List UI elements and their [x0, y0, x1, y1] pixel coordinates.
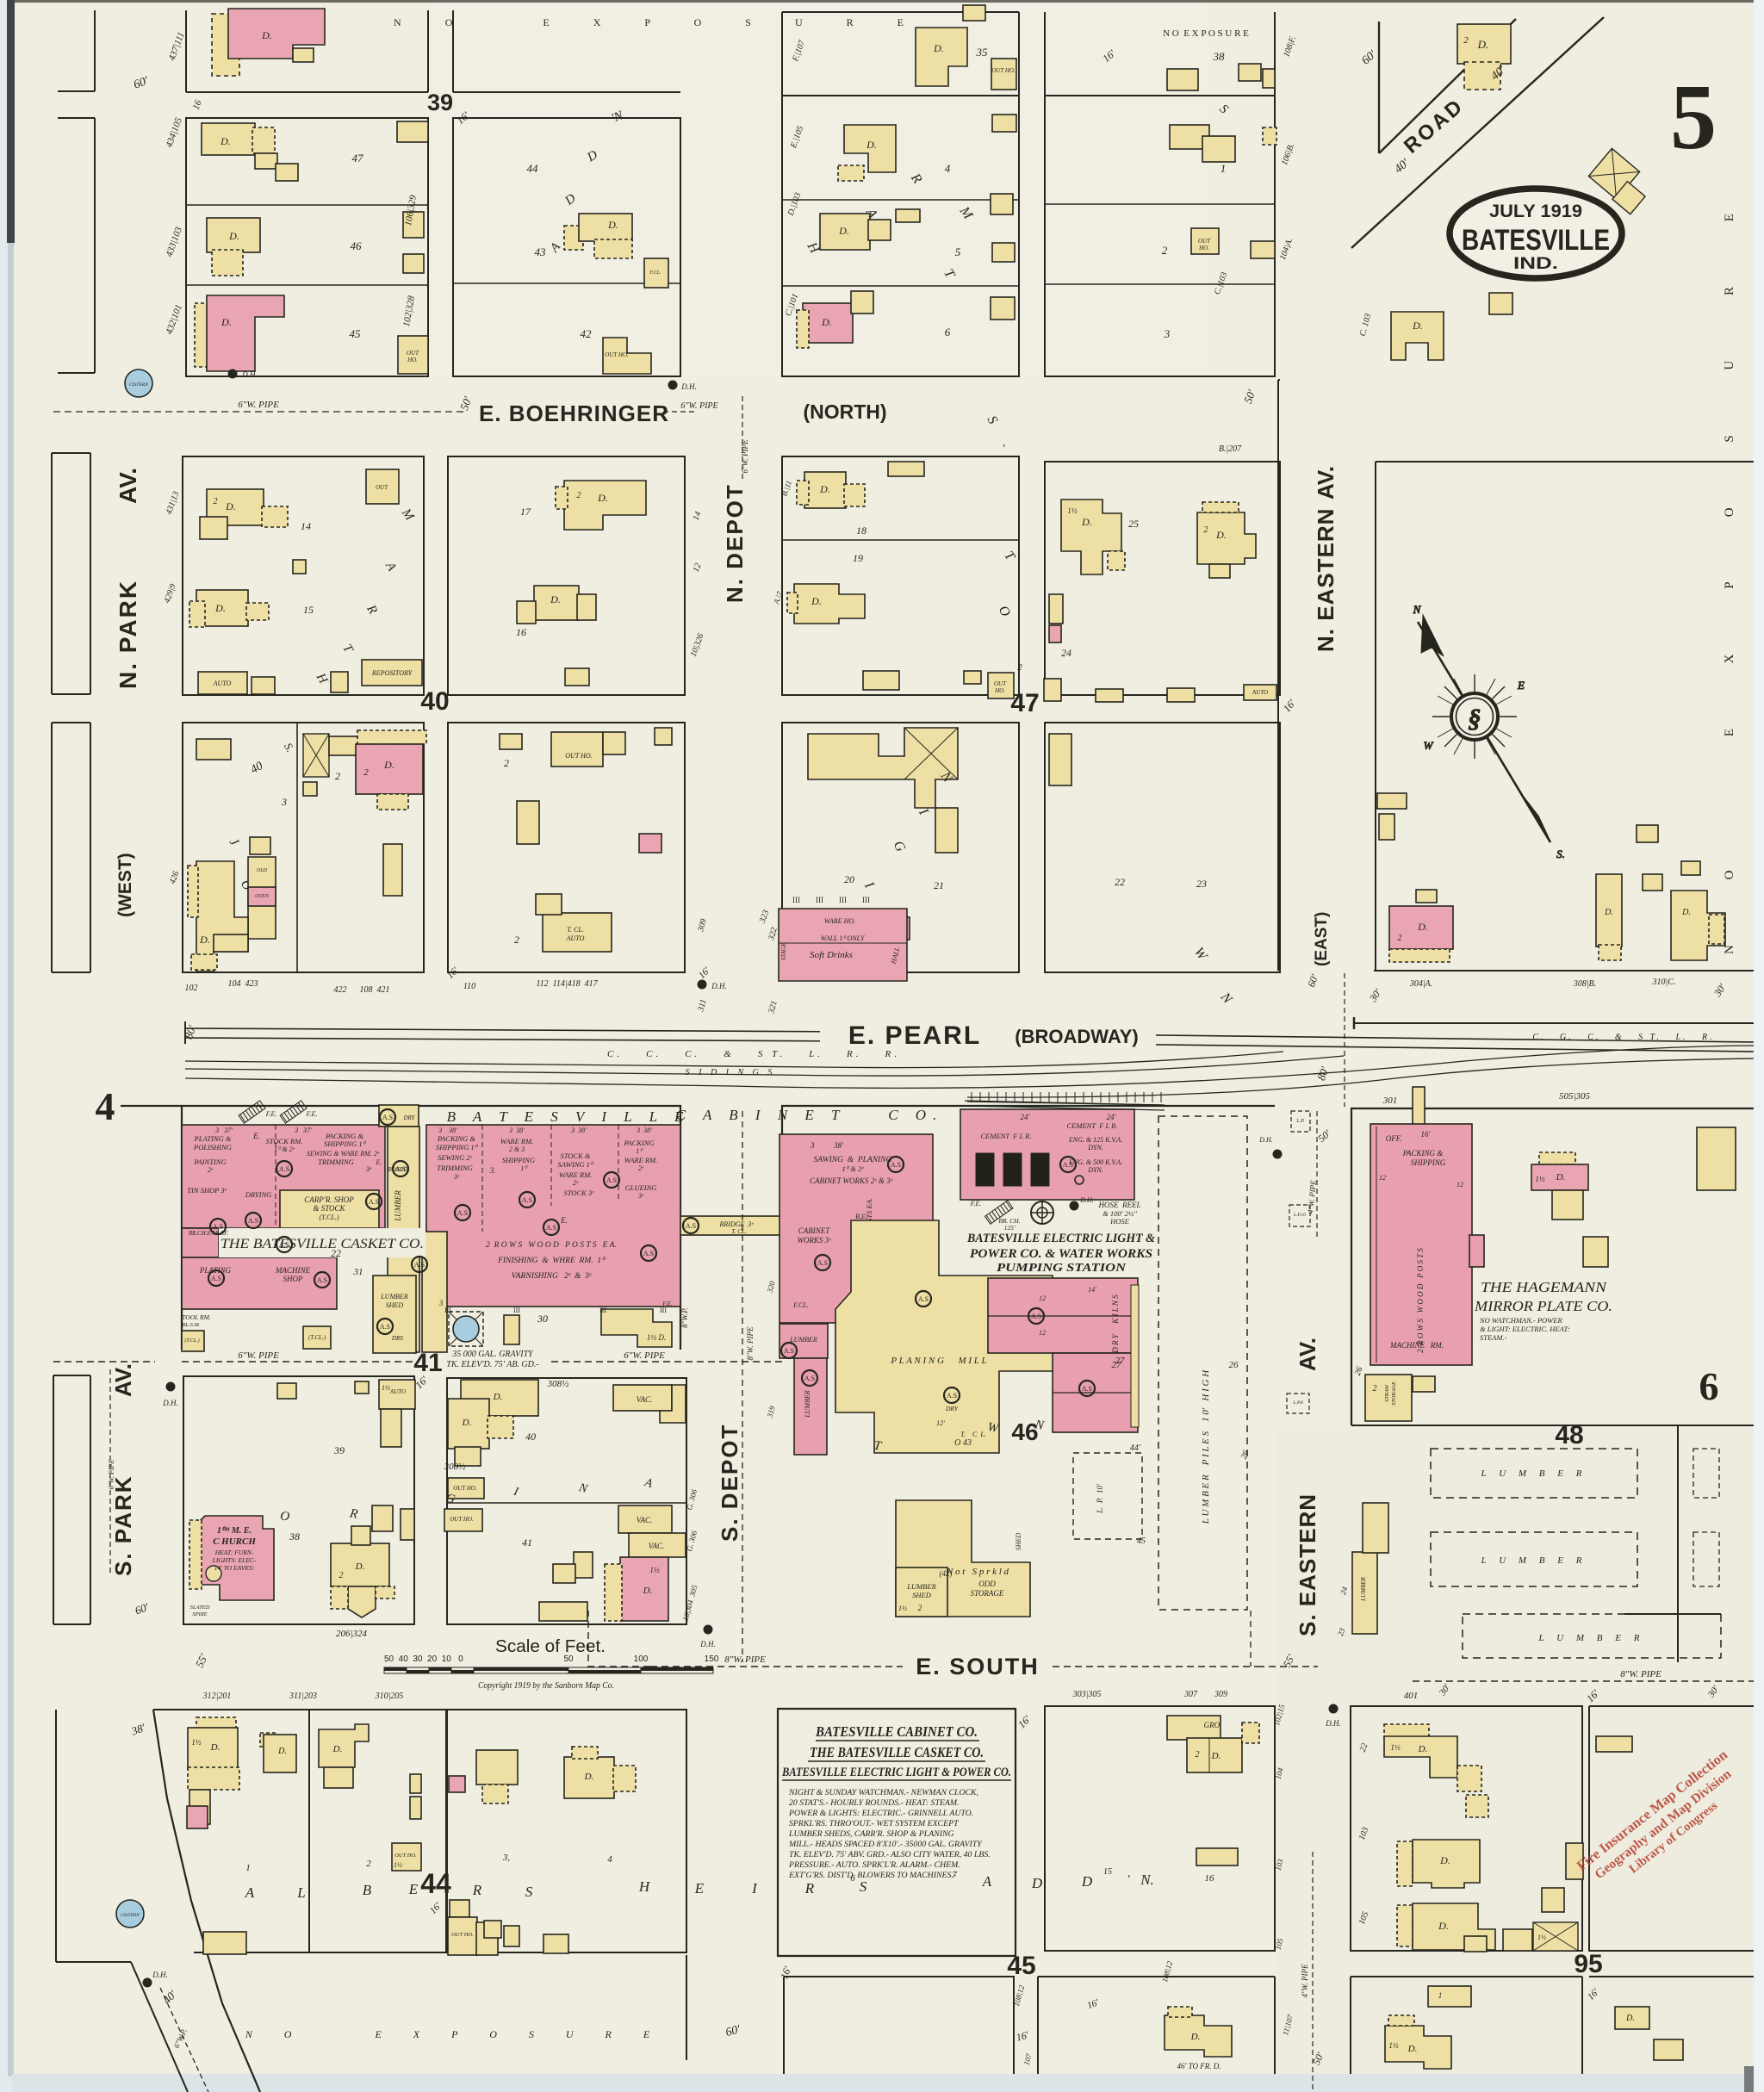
- svg-text:38: 38: [289, 1530, 300, 1543]
- svg-text:3.: 3.: [489, 1166, 496, 1175]
- svg-text:12': 12': [936, 1419, 945, 1427]
- svg-text:BATESVILLE: BATESVILLE: [1462, 224, 1610, 257]
- svg-text:LUMBER: LUMBER: [789, 1336, 817, 1344]
- svg-text:(T.CL.): (T.CL.): [308, 1334, 326, 1341]
- svg-text:6: 6: [850, 1873, 855, 1884]
- svg-text:14' TO EAVES:: 14' TO EAVES:: [214, 1564, 255, 1572]
- svg-text:ODD: ODD: [978, 1580, 996, 1588]
- svg-text:SHIPPING 1⁰: SHIPPING 1⁰: [436, 1143, 479, 1152]
- svg-text:3: 3: [1164, 327, 1171, 340]
- svg-text:1½: 1½: [382, 1384, 390, 1392]
- svg-text:OUT HO.: OUT HO.: [991, 67, 1016, 74]
- svg-text:E: E: [694, 1880, 705, 1896]
- svg-text:NO WATCHMAN.- POWER: NO WATCHMAN.- POWER: [1479, 1316, 1562, 1325]
- svg-text:D.: D.: [597, 492, 608, 504]
- svg-text:WARE RM.: WARE RM.: [500, 1137, 534, 1145]
- svg-text:2: 2: [1463, 35, 1469, 46]
- svg-text:LUMBER: LUMBER: [394, 1190, 402, 1222]
- svg-text:T. CL.: T. CL.: [731, 1228, 746, 1235]
- svg-text:L: L: [296, 1884, 305, 1901]
- svg-text:POWER CO. & WATER WORKS: POWER CO. & WATER WORKS: [970, 1247, 1152, 1261]
- svg-text:3 37': 3 37': [214, 1127, 233, 1134]
- svg-text:A.S: A.S: [1063, 1161, 1073, 1169]
- svg-text:SHIPPING: SHIPPING: [502, 1156, 535, 1164]
- svg-text:1: 1: [1221, 162, 1227, 175]
- svg-text:C A B I N E T C O.: C A B I N E T C O.: [676, 1107, 944, 1123]
- svg-text:R: R: [472, 1882, 482, 1898]
- svg-text:1½: 1½: [394, 1861, 402, 1869]
- svg-text:POWER & LIGHTS: ELECTRIC.- GRI: POWER & LIGHTS: ELECTRIC.- GRINNELL AUTO…: [788, 1809, 973, 1818]
- svg-text:47: 47: [352, 152, 364, 165]
- svg-text:AUTO: AUTO: [566, 934, 585, 942]
- svg-text:LUMBER: LUMBER: [1360, 1576, 1367, 1601]
- svg-text:2: 2: [363, 767, 369, 778]
- svg-text:50: 50: [563, 1654, 574, 1664]
- svg-text:4: 4: [96, 1084, 115, 1128]
- svg-text:CABINET: CABINET: [798, 1226, 830, 1235]
- svg-text:THE HAGEMANN: THE HAGEMANN: [1481, 1279, 1608, 1295]
- svg-text:310|205: 310|205: [375, 1692, 404, 1701]
- svg-text:SHIPPING: SHIPPING: [1411, 1158, 1446, 1167]
- svg-text:AV.: AV.: [110, 1363, 136, 1397]
- svg-text:A.S: A.S: [918, 1295, 929, 1303]
- svg-text:N. PARK: N. PARK: [115, 580, 141, 689]
- svg-text:E.: E.: [560, 1216, 568, 1225]
- svg-text:102: 102: [185, 984, 198, 993]
- svg-text:III: III: [599, 1307, 606, 1314]
- svg-text:1: 1: [245, 1863, 251, 1873]
- svg-text:(NORTH): (NORTH): [803, 400, 886, 423]
- svg-text:W: W: [1424, 739, 1434, 752]
- svg-text:CEMENT F L R.: CEMENT F L R.: [981, 1132, 1032, 1140]
- svg-text:6: 6: [945, 326, 951, 338]
- svg-text:MILL.- HEADS SPACED 8'X10'.- 3: MILL.- HEADS SPACED 8'X10'.- 35000 GAL. …: [788, 1840, 983, 1849]
- svg-text:35 000 GAL. GRAVITY: 35 000 GAL. GRAVITY: [451, 1350, 534, 1359]
- svg-text:E.: E.: [376, 1158, 382, 1166]
- svg-text:45: 45: [1137, 1536, 1146, 1546]
- svg-text:PACKING: PACKING: [623, 1139, 654, 1147]
- svg-text:30: 30: [537, 1313, 548, 1325]
- svg-text:PLATING &: PLATING &: [194, 1134, 232, 1143]
- svg-text:D.H.: D.H.: [152, 1971, 168, 1979]
- svg-text:III III III: III III III III: [792, 896, 870, 904]
- svg-text:PACKING &: PACKING &: [1402, 1149, 1444, 1158]
- svg-text:4: 4: [945, 162, 951, 175]
- svg-text:22: 22: [331, 1247, 341, 1259]
- svg-text:3 37': 3 37': [294, 1127, 312, 1134]
- svg-text:III: III: [444, 1307, 451, 1314]
- svg-text:2: 2: [514, 934, 519, 946]
- svg-text:46: 46: [1011, 1418, 1038, 1445]
- svg-text:2: 2: [1398, 934, 1402, 943]
- svg-text:A.S: A.S: [248, 1217, 258, 1225]
- svg-text:100: 100: [634, 1654, 649, 1664]
- svg-text:40: 40: [420, 687, 449, 716]
- svg-text:307 309: 307 309: [1183, 1690, 1227, 1699]
- svg-text:D.: D.: [1412, 320, 1423, 332]
- svg-text:2ᵉ: 2ᵉ: [573, 1179, 579, 1187]
- svg-text:16: 16: [516, 626, 526, 638]
- svg-text:OLD: OLD: [257, 868, 268, 873]
- svg-text:39: 39: [333, 1444, 345, 1456]
- svg-text:47: 47: [1010, 689, 1039, 717]
- svg-text:A.S: A.S: [804, 1375, 815, 1382]
- svg-text:15: 15: [303, 604, 314, 616]
- svg-text:STEAM.-: STEAM.-: [1480, 1333, 1507, 1342]
- svg-text:5: 5: [955, 245, 961, 258]
- svg-text:D.: D.: [493, 1392, 503, 1402]
- svg-text:2ᵉ: 2ᵉ: [208, 1166, 214, 1174]
- svg-text:1⁰ᴹ M. E.: 1⁰ᴹ M. E.: [217, 1526, 252, 1536]
- svg-text:D.: D.: [1418, 1744, 1428, 1754]
- svg-text:2: 2: [1196, 1750, 1200, 1760]
- svg-text:D.: D.: [584, 1772, 594, 1782]
- svg-text:N O E X P O S U R E: N O E X P O S U R E: [1723, 183, 1736, 954]
- svg-text:4: 4: [607, 1854, 612, 1865]
- svg-text:125': 125': [1004, 1224, 1016, 1232]
- svg-text:OUT: OUT: [376, 484, 388, 491]
- svg-text:P L A N I N G M I L L: P L A N I N G M I L L: [890, 1356, 986, 1366]
- svg-text:EXT'G'RS. DIST'D. BLOWERS TO M: EXT'G'RS. DIST'D. BLOWERS TO MACHINES.-: [788, 1871, 956, 1880]
- svg-text:SHED: SHED: [912, 1591, 932, 1599]
- svg-text:1½: 1½: [1388, 2041, 1399, 2050]
- svg-text:S: S: [525, 1884, 533, 1900]
- svg-text:3 38': 3 38': [438, 1127, 457, 1134]
- svg-text:A.S: A.S: [382, 1114, 393, 1121]
- svg-text:8"W.P.: 8"W.P.: [680, 1307, 689, 1328]
- svg-text:D.H.: D.H.: [241, 370, 258, 379]
- svg-text:45: 45: [350, 327, 362, 340]
- svg-text:A.S: A.S: [522, 1196, 532, 1204]
- svg-text:12: 12: [1457, 1181, 1463, 1189]
- svg-text:OUT HO.: OUT HO.: [451, 1932, 474, 1938]
- svg-text:ENG. & 125 K.V.A.: ENG. & 125 K.V.A.: [1068, 1136, 1122, 1144]
- svg-text:D.: D.: [1439, 1854, 1450, 1866]
- svg-text:1½: 1½: [898, 1605, 907, 1612]
- svg-text:SPRKL'RS. THRO'OUT.- WET SYSTE: SPRKL'RS. THRO'OUT.- WET SYSTEM EXCEPT: [789, 1819, 960, 1828]
- svg-text:STOCK &: STOCK &: [560, 1152, 590, 1160]
- svg-text:1⁰ & 2ᵉ: 1⁰ & 2ᵉ: [274, 1145, 295, 1153]
- svg-text:5: 5: [1670, 66, 1717, 169]
- svg-text:38: 38: [1213, 50, 1226, 63]
- svg-text:150: 150: [705, 1654, 719, 1664]
- svg-text:K I L N S: K I L N S: [1111, 1294, 1120, 1325]
- svg-text:(T.CL.): (T.CL.): [184, 1338, 199, 1344]
- svg-text:D.: D.: [199, 934, 210, 946]
- svg-text:41: 41: [413, 1349, 442, 1377]
- svg-text:THE BATESVILLE CASKET CO.: THE BATESVILLE CASKET CO.: [220, 1237, 424, 1251]
- svg-text:8"W. PIPE: 8"W. PIPE: [1620, 1669, 1662, 1679]
- svg-text:12: 12: [1379, 1174, 1386, 1182]
- svg-text:D.: D.: [383, 759, 394, 771]
- svg-text:3ᵉ: 3ᵉ: [365, 1165, 372, 1173]
- svg-text:S.: S.: [1556, 847, 1565, 860]
- svg-text:3 38': 3 38': [508, 1127, 525, 1134]
- svg-text:7: 7: [952, 1870, 957, 1880]
- svg-text:LIGHTS: ELEC-: LIGHTS: ELEC-: [212, 1556, 257, 1564]
- svg-text:(T.CL.): (T.CL.): [320, 1214, 339, 1221]
- svg-text:TRIMMING: TRIMMING: [437, 1164, 473, 1172]
- svg-text:44: 44: [420, 1868, 451, 1899]
- svg-text:D.: D.: [1407, 2044, 1418, 2054]
- svg-text:48: 48: [1555, 1421, 1583, 1450]
- svg-text:110: 110: [463, 982, 475, 991]
- svg-text:OUT: OUT: [994, 680, 1007, 687]
- svg-text:L U M B E R: L U M B E R: [1481, 1555, 1587, 1566]
- svg-text:HO.: HO.: [407, 357, 418, 363]
- svg-text:505|305: 505|305: [1559, 1091, 1591, 1102]
- svg-text:40: 40: [525, 1431, 536, 1443]
- svg-text:S I D I N G S: S I D I N G S: [686, 1068, 776, 1077]
- svg-text:B: B: [363, 1882, 372, 1898]
- svg-text:206|324: 206|324: [336, 1629, 368, 1639]
- svg-text:45: 45: [1007, 1952, 1035, 1980]
- svg-text:A.S: A.S: [395, 1165, 406, 1173]
- svg-text:D.: D.: [643, 1586, 653, 1596]
- svg-text:6"W. PIPE: 6"W. PIPE: [680, 401, 717, 411]
- svg-text:B.E.: B.E.: [855, 1213, 867, 1220]
- svg-text:D R Y: D R Y: [1111, 1333, 1120, 1353]
- svg-text:3 38': 3 38': [810, 1141, 844, 1150]
- svg-text:WARE RM.: WARE RM.: [559, 1170, 593, 1179]
- svg-text:F.E.: F.E.: [306, 1110, 318, 1118]
- svg-text:JULY 1919: JULY 1919: [1489, 202, 1582, 221]
- svg-text:D.: D.: [220, 135, 231, 147]
- svg-text:401: 401: [1404, 1691, 1419, 1701]
- svg-text:GRO.: GRO.: [1204, 1721, 1222, 1729]
- svg-text:3: 3: [281, 796, 287, 808]
- svg-text:III: III: [513, 1307, 520, 1314]
- svg-text:Copyright 1919 by the Sanborn: Copyright 1919 by the Sanborn Map Co.: [478, 1681, 614, 1691]
- svg-text:& STOCK: & STOCK: [313, 1204, 345, 1213]
- svg-text:N.: N.: [1140, 1872, 1154, 1888]
- svg-text:26: 26: [1229, 1360, 1239, 1370]
- svg-text:2: 2: [1017, 662, 1022, 673]
- svg-text:SAWING & PLANING: SAWING & PLANING: [814, 1156, 892, 1164]
- svg-text:D.: D.: [811, 595, 822, 607]
- svg-text:WARE RM.: WARE RM.: [624, 1156, 658, 1164]
- svg-text:308|B.: 308|B.: [1573, 979, 1596, 989]
- svg-text:1½: 1½: [1537, 1934, 1546, 1941]
- svg-text:D.H.: D.H.: [1258, 1136, 1273, 1144]
- svg-text:OUT: OUT: [407, 350, 419, 357]
- svg-text:D: D: [1031, 1875, 1043, 1891]
- svg-text:D.: D.: [261, 29, 272, 41]
- svg-text:311|203: 311|203: [289, 1692, 317, 1701]
- svg-text:D.: D.: [214, 602, 226, 614]
- svg-text:D.: D.: [1190, 2032, 1201, 2042]
- svg-text:L. P. 10': L. P. 10': [1096, 1483, 1104, 1514]
- svg-text:T. CL.: T. CL.: [567, 926, 584, 934]
- svg-text:1½ D.: 1½ D.: [647, 1333, 666, 1342]
- svg-text:308½: 308½: [547, 1379, 569, 1389]
- svg-text:D.: D.: [1556, 1172, 1566, 1183]
- svg-text:STAGE: STAGE: [780, 942, 787, 960]
- svg-text:VAC.: VAC.: [637, 1516, 653, 1524]
- svg-text:D.H.: D.H.: [699, 1640, 716, 1648]
- svg-text:SPIRE: SPIRE: [192, 1611, 207, 1617]
- svg-text:A.S: A.S: [947, 1392, 957, 1400]
- svg-text:STORAGE: STORAGE: [971, 1589, 1004, 1598]
- svg-text:A.S: A.S: [457, 1209, 468, 1217]
- svg-text:L U M B E R P I L E S 1: L U M B E R P I L E S 1 0' H I G H: [1201, 1369, 1211, 1524]
- svg-text:NIGHT & SUNDAY WATCHMAN.- NEWM: NIGHT & SUNDAY WATCHMAN.- NEWMAN CLOCK,: [788, 1788, 978, 1797]
- svg-text:A.S: A.S: [279, 1165, 289, 1173]
- svg-text:POLISHING: POLISHING: [193, 1143, 232, 1152]
- svg-text:41: 41: [522, 1536, 532, 1549]
- svg-text:1½: 1½: [1067, 506, 1078, 515]
- svg-text:18: 18: [856, 525, 866, 537]
- svg-text:6"W. PIPE: 6"W. PIPE: [238, 400, 279, 410]
- svg-text:D.: D.: [1625, 2014, 1635, 2023]
- svg-text:A.S: A.S: [211, 1275, 221, 1282]
- svg-text:2: 2: [214, 497, 218, 506]
- svg-text:E: E: [408, 1881, 419, 1897]
- svg-text:D.: D.: [228, 230, 239, 242]
- svg-text:D.: D.: [1681, 908, 1691, 917]
- svg-text:L.P.10: L.P.10: [1293, 1213, 1306, 1218]
- svg-text:N O E X P O S U R E: N O E X P O S U R E: [245, 2028, 664, 2040]
- svg-text:OUT HO.: OUT HO.: [565, 752, 592, 760]
- svg-text:BL.S.M.: BL.S.M.: [182, 1322, 201, 1328]
- svg-text:D.H.: D.H.: [680, 382, 697, 391]
- svg-text:N. DEPOT: N. DEPOT: [722, 483, 748, 603]
- svg-text:D.: D.: [1477, 38, 1489, 51]
- svg-text:3ᵉ: 3ᵉ: [637, 1192, 644, 1200]
- svg-text:OVEN: OVEN: [255, 894, 270, 899]
- svg-text:D.: D.: [210, 1742, 220, 1753]
- svg-text:3: 3: [438, 1299, 444, 1307]
- svg-text:D.: D.: [355, 1561, 365, 1572]
- svg-text:OUT HO.: OUT HO.: [605, 351, 629, 358]
- svg-text:OUT HO.: OUT HO.: [450, 1516, 474, 1523]
- svg-text:24: 24: [1061, 647, 1071, 659]
- svg-text:D.: D.: [277, 1747, 287, 1756]
- svg-text:2 & 3: 2 & 3: [509, 1145, 525, 1153]
- svg-text:2: 2: [918, 1604, 922, 1612]
- svg-text:A.S: A.S: [784, 1347, 794, 1355]
- svg-text:8"W. PIPE: 8"W. PIPE: [746, 1326, 755, 1360]
- svg-text:2: 2: [577, 491, 581, 500]
- svg-text:2ᵉ: 2ᵉ: [638, 1164, 644, 1172]
- svg-text:SHIPPING 1⁰: SHIPPING 1⁰: [324, 1139, 367, 1148]
- svg-text:AV.: AV.: [115, 468, 141, 504]
- svg-text:VARNISHING 2ᵉ & 3ᵉ: VARNISHING 2ᵉ & 3ᵉ: [512, 1272, 592, 1281]
- svg-text:44: 44: [527, 162, 539, 175]
- svg-text:WARE HO.: WARE HO.: [824, 917, 855, 925]
- svg-text:SEWING 2ᵉ: SEWING 2ᵉ: [438, 1153, 473, 1162]
- svg-text:A.S: A.S: [279, 1241, 289, 1249]
- svg-text:A.S: A.S: [414, 1261, 425, 1269]
- svg-text:OUT HO.: OUT HO.: [394, 1853, 417, 1859]
- svg-text:31: 31: [353, 1267, 363, 1277]
- svg-text:B.|207: B.|207: [1219, 444, 1242, 454]
- svg-text:A.S: A.S: [606, 1176, 617, 1184]
- svg-text:H: H: [638, 1878, 651, 1895]
- svg-text:F.CL.: F.CL.: [649, 270, 661, 276]
- svg-text:BATESVILLE ELECTRIC LIGHT &: BATESVILLE ELECTRIC LIGHT &: [966, 1232, 1155, 1245]
- svg-text:2: 2: [335, 770, 340, 782]
- svg-text:SEWING & WARE RM. 2ᵉ: SEWING & WARE RM. 2ᵉ: [307, 1150, 380, 1158]
- svg-text:E.: E.: [252, 1132, 260, 1140]
- svg-text:104 423: 104 423: [228, 979, 258, 989]
- svg-text:1½: 1½: [649, 1566, 660, 1574]
- svg-text:27: 27: [1112, 1360, 1122, 1370]
- svg-text:A.S: A.S: [546, 1224, 556, 1232]
- svg-text:D.: D.: [1215, 529, 1227, 541]
- svg-text:20: 20: [844, 873, 854, 885]
- svg-text:SLATED: SLATED: [190, 1605, 210, 1611]
- svg-text:312|201: 312|201: [202, 1692, 232, 1701]
- svg-text:TIN SHOP 3ᵉ: TIN SHOP 3ᵉ: [187, 1186, 227, 1195]
- svg-text:304|A.: 304|A.: [1409, 979, 1432, 989]
- svg-text:D.: D.: [462, 1418, 472, 1428]
- svg-text:SHOP: SHOP: [283, 1275, 303, 1283]
- svg-text:6"W. PIPE: 6"W. PIPE: [624, 1350, 665, 1361]
- svg-text:(EAST): (EAST): [1313, 912, 1331, 966]
- svg-text:12: 12: [1039, 1294, 1046, 1302]
- svg-text:BRIDGE 3ᵉ: BRIDGE 3ᵉ: [720, 1220, 755, 1228]
- svg-text:Soft Drinks: Soft Drinks: [810, 950, 853, 960]
- svg-text:D.: D.: [1417, 921, 1428, 933]
- svg-text:D.H.: D.H.: [1325, 1719, 1341, 1728]
- svg-text:WORKS 3ᵉ: WORKS 3ᵉ: [797, 1236, 831, 1245]
- svg-text:43: 43: [535, 245, 547, 258]
- svg-text:1½: 1½: [1535, 1175, 1545, 1183]
- svg-text:D.: D.: [821, 316, 832, 328]
- svg-text:A: A: [982, 1873, 992, 1890]
- svg-text:S. DEPOT: S. DEPOT: [717, 1424, 742, 1542]
- svg-text:O 43: O 43: [954, 1438, 972, 1448]
- svg-text:(BROADWAY): (BROADWAY): [1015, 1026, 1138, 1047]
- svg-text:N: N: [1413, 603, 1422, 616]
- svg-text:N O E X P O S U R E: N O E X P O S U R E: [394, 16, 924, 28]
- svg-text:A: A: [245, 1884, 255, 1901]
- svg-text:T. C L.: T. C L.: [960, 1431, 986, 1438]
- svg-text:A.S: A.S: [1082, 1385, 1092, 1393]
- svg-text:DRY: DRY: [945, 1405, 959, 1412]
- svg-text:301: 301: [1382, 1096, 1398, 1106]
- svg-text:SAWING 1⁰: SAWING 1⁰: [558, 1160, 594, 1169]
- svg-text:SHED: SHED: [386, 1301, 404, 1309]
- svg-text:L U M B E R: L U M B E R: [1481, 1468, 1587, 1479]
- svg-text:TK. ELEV'D. 75' AB. GD.-: TK. ELEV'D. 75' AB. GD.-: [446, 1360, 538, 1369]
- svg-text:SHED: SHED: [1015, 1533, 1022, 1551]
- svg-text:17: 17: [520, 506, 531, 518]
- svg-text:III: III: [660, 1307, 667, 1314]
- svg-text:D: D: [1081, 1873, 1093, 1890]
- svg-text:2: 2: [366, 1859, 371, 1869]
- svg-text:E. BOEHRINGER: E. BOEHRINGER: [479, 400, 669, 426]
- svg-text:AUTO: AUTO: [1252, 689, 1268, 696]
- svg-text:TK. ELEV'D. 75' ABV. GRD.- ALS: TK. ELEV'D. 75' ABV. GRD.- ALSO CITY WAT…: [789, 1850, 991, 1859]
- svg-text:F.E.: F.E.: [265, 1110, 277, 1118]
- svg-text:REPOSITORY: REPOSITORY: [371, 669, 413, 677]
- svg-text:DRY.: DRY.: [391, 1335, 404, 1342]
- svg-text:E: E: [1517, 679, 1525, 692]
- svg-text:CEMENT F L R.: CEMENT F L R.: [1067, 1121, 1118, 1130]
- svg-text:STORAGE: STORAGE: [1391, 1381, 1397, 1406]
- svg-text:303|305: 303|305: [1072, 1690, 1102, 1699]
- svg-text:2 R O W S W O O D P O S T: 2 R O W S W O O D P O S T S: [1416, 1248, 1425, 1353]
- svg-text:22: 22: [1115, 876, 1125, 888]
- svg-text:D.: D.: [1211, 1751, 1221, 1761]
- svg-text:E. SOUTH: E. SOUTH: [916, 1654, 1040, 1679]
- svg-text:D.: D.: [838, 225, 849, 237]
- svg-text:DYN.: DYN.: [1087, 1166, 1103, 1174]
- svg-text:LUMBER: LUMBER: [906, 1582, 936, 1591]
- svg-text:HEAT: FURN-: HEAT: FURN-: [214, 1549, 254, 1556]
